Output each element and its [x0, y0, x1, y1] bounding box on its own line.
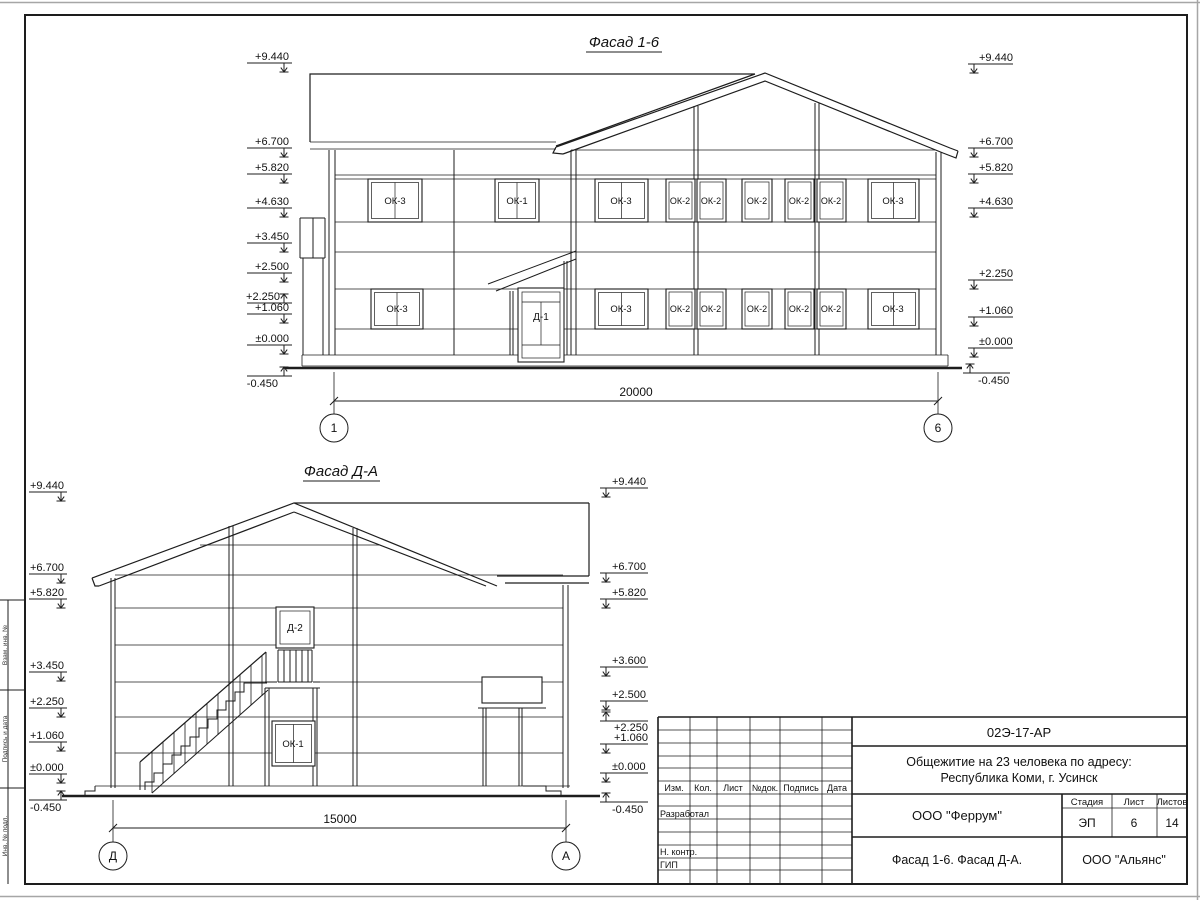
window-label: ОК-2	[670, 304, 690, 314]
window: ОК-2	[817, 289, 846, 329]
stage-label: Стадия	[1071, 797, 1103, 808]
elevation-mark: +2.250	[968, 268, 1013, 289]
elevation-marks-right: +9.440 +6.700 +5.820 +3.600 +2.500 +2.25…	[600, 476, 648, 816]
svg-text:±0.000: ±0.000	[255, 333, 289, 345]
elevation-mark: -0.450	[247, 367, 292, 390]
window: ОК-2	[742, 289, 772, 329]
doc-number: 02Э-17-АР	[987, 725, 1051, 740]
window: ОК-3	[868, 179, 919, 222]
svg-text:-0.450: -0.450	[30, 802, 61, 814]
elevation-mark: +1.060	[247, 302, 292, 323]
drawing-canvas: Взам. инв. № Подпись и дата Инв. № подл.…	[0, 0, 1200, 900]
window: ОК-3	[371, 289, 423, 329]
window-label: ОК-1	[282, 739, 303, 750]
window: ОК-2	[666, 179, 695, 222]
dimension-text: 15000	[323, 812, 357, 826]
facade-1-6: Фасад 1-6 ОК-3 ОК-1 ОК-3 ОК-2 ОК-2 ОК-2 …	[246, 34, 1013, 442]
svg-text:+9.440: +9.440	[979, 52, 1013, 64]
window: ОК-2	[785, 289, 814, 329]
window-label: ОК-3	[610, 304, 631, 315]
elevation-mark: ±0.000	[968, 336, 1013, 357]
siding-lines	[302, 142, 948, 366]
svg-text:+5.820: +5.820	[30, 587, 64, 599]
col-header: №док.	[752, 783, 778, 793]
client-org: ООО "Альянс"	[1082, 853, 1166, 867]
window: ОК-3	[595, 289, 648, 329]
elevation-mark: +5.820	[247, 162, 292, 183]
stage-value: ЭП	[1078, 816, 1095, 830]
project-name-line2: Республика Коми, г. Усинск	[941, 771, 1098, 785]
roof	[310, 73, 958, 158]
svg-text:+2.500: +2.500	[255, 261, 289, 273]
svg-text:+5.820: +5.820	[612, 587, 646, 599]
svg-text:-0.450: -0.450	[247, 378, 278, 390]
door-label: Д-1	[533, 312, 549, 323]
svg-text:+5.820: +5.820	[255, 162, 289, 174]
elevation-marks-left: +9.440 +6.700 +5.820 +3.450 +2.250 +1.06…	[29, 480, 67, 814]
window: ОК-1	[272, 721, 315, 766]
window-label: ОК-1	[506, 196, 527, 207]
window: ОК-2	[817, 179, 846, 222]
elevation-mark: +3.450	[247, 231, 292, 252]
wall-posts	[111, 526, 568, 788]
window: ОК-2	[666, 289, 695, 329]
sheets-total: 14	[1165, 816, 1179, 830]
elevation-mark: ±0.000	[29, 762, 67, 783]
col-header: Дата	[827, 783, 847, 793]
axis-label: 6	[935, 421, 942, 435]
chimney	[300, 218, 325, 355]
facade-d-a-title: Фасад Д-А	[304, 463, 378, 480]
dimension-15000: 15000 Д А	[99, 800, 580, 870]
col-header: Лист	[723, 783, 743, 793]
window-label: ОК-2	[821, 196, 841, 206]
project-name-line1: Общежитие на 23 человека по адресу:	[906, 755, 1131, 769]
col-header: Кол.	[694, 783, 712, 793]
facade-d-a: Фасад Д-А Д-2	[29, 463, 648, 870]
elevation-marks-left: +9.440 +6.700 +5.820 +4.630 +3.450 +2.50…	[246, 51, 292, 390]
window: ОК-3	[368, 179, 422, 222]
landing-railing	[277, 649, 313, 683]
svg-text:+6.700: +6.700	[612, 561, 646, 573]
window-label: ОК-2	[701, 304, 721, 314]
window: ОК-3	[868, 289, 919, 329]
svg-text:+4.630: +4.630	[255, 196, 289, 208]
role-label: Разработал	[660, 809, 709, 819]
window-label: ОК-2	[821, 304, 841, 314]
window-label: ОК-2	[670, 196, 690, 206]
elevation-mark: +1.060	[600, 732, 648, 753]
title-block: Изм. Кол. Лист №док. Подпись Дата Разраб…	[658, 717, 1187, 883]
sheet-label: Лист	[1124, 797, 1145, 808]
elevation-mark: -0.450	[600, 793, 648, 816]
door-label: Д-2	[287, 623, 303, 634]
window-label: ОК-3	[386, 304, 407, 315]
svg-text:+5.820: +5.820	[979, 162, 1013, 174]
window: ОК-2	[742, 179, 772, 222]
elevation-mark: +3.450	[29, 660, 67, 681]
axis-label: Д	[109, 849, 117, 863]
elevation-mark: +6.700	[968, 136, 1013, 157]
elevation-mark: +5.820	[29, 587, 67, 608]
elevation-marks-right: +9.440 +6.700 +5.820 +4.630 +2.250 +1.06…	[963, 52, 1013, 387]
designer-org: ООО "Феррум"	[912, 808, 1002, 823]
col-header: Подпись	[783, 783, 819, 793]
window: ОК-3	[595, 179, 648, 222]
axis-label: А	[562, 849, 570, 863]
porch	[478, 677, 580, 796]
svg-text:+1.060: +1.060	[255, 302, 289, 314]
base-step	[85, 786, 95, 796]
svg-text:+2.250: +2.250	[30, 696, 64, 708]
svg-text:+1.060: +1.060	[979, 305, 1013, 317]
elevation-mark: +2.250	[600, 712, 648, 734]
svg-text:+9.440: +9.440	[612, 476, 646, 488]
svg-text:+4.630: +4.630	[979, 196, 1013, 208]
sheet-title: Фасад 1-6. Фасад Д-А.	[892, 853, 1022, 867]
role-label: Н. контр.	[660, 847, 697, 857]
role-label: ГИП	[660, 860, 678, 870]
stairs	[140, 652, 268, 793]
svg-text:+3.450: +3.450	[255, 231, 289, 243]
axis-label: 1	[331, 421, 338, 435]
window: ОК-2	[697, 179, 726, 222]
window-label: ОК-2	[789, 304, 809, 314]
drawing-sheet: Взам. инв. № Подпись и дата Инв. № подл.…	[0, 0, 1200, 900]
window-label: ОК-3	[882, 304, 903, 315]
elevation-mark: +1.060	[968, 305, 1013, 326]
svg-text:+9.440: +9.440	[255, 51, 289, 63]
svg-text:+3.600: +3.600	[612, 655, 646, 667]
elevation-mark: +1.060	[29, 730, 67, 751]
elevation-mark: +9.440	[600, 476, 648, 497]
svg-text:+6.700: +6.700	[30, 562, 64, 574]
elevation-mark: +6.700	[29, 562, 67, 583]
roof	[92, 503, 589, 586]
entrance-door: Д-1	[518, 288, 564, 362]
elevation-mark: +5.820	[600, 587, 648, 608]
sheet-number: 6	[1131, 816, 1138, 830]
col-header: Изм.	[664, 783, 683, 793]
svg-text:±0.000: ±0.000	[30, 762, 64, 774]
window-label: ОК-2	[747, 196, 767, 206]
window-label: ОК-3	[384, 196, 405, 207]
elevation-mark: +2.500	[247, 261, 292, 282]
elevation-mark: ±0.000	[247, 333, 292, 354]
elevation-mark: -0.450	[29, 791, 67, 814]
window-label: ОК-3	[882, 196, 903, 207]
elevation-mark: +6.700	[600, 561, 648, 582]
facade-1-6-title: Фасад 1-6	[589, 34, 660, 51]
elevation-mark: +4.630	[968, 196, 1013, 217]
sheets-label: Листов	[1157, 797, 1188, 808]
elevation-mark: +4.630	[247, 196, 292, 217]
svg-text:+2.500: +2.500	[612, 689, 646, 701]
elevation-mark: ±0.000	[600, 761, 648, 782]
window-label: ОК-2	[789, 196, 809, 206]
elevation-mark: +9.440	[29, 480, 67, 501]
siding-lines	[95, 545, 570, 786]
window-label: ОК-2	[747, 304, 767, 314]
elevation-mark: +2.250	[29, 696, 67, 717]
window-label: ОК-2	[701, 196, 721, 206]
upper-door: Д-2	[276, 607, 314, 648]
svg-text:±0.000: ±0.000	[979, 336, 1013, 348]
frame-side-label: Взам. инв. №	[2, 625, 9, 665]
elevation-mark: +9.440	[968, 52, 1013, 73]
svg-text:+1.060: +1.060	[614, 732, 648, 744]
svg-text:+3.450: +3.450	[30, 660, 64, 672]
svg-text:+6.700: +6.700	[255, 136, 289, 148]
elevation-mark: +3.600	[600, 655, 648, 676]
elevation-mark: +2.500	[600, 689, 648, 710]
frame-side-label: Подпись и дата	[2, 715, 9, 762]
dimension-text: 20000	[619, 385, 653, 399]
svg-text:+6.700: +6.700	[979, 136, 1013, 148]
svg-text:+2.250: +2.250	[979, 268, 1013, 280]
elevation-mark: +6.700	[247, 136, 292, 157]
svg-text:+9.440: +9.440	[30, 480, 64, 492]
frame-side-label: Инв. № подл.	[2, 816, 9, 857]
svg-text:±0.000: ±0.000	[612, 761, 646, 773]
window: ОК-2	[697, 289, 726, 329]
elevation-mark: +5.820	[968, 162, 1013, 183]
svg-text:+1.060: +1.060	[30, 730, 64, 742]
elevation-mark: -0.450	[963, 364, 1010, 387]
svg-text:-0.450: -0.450	[978, 375, 1009, 387]
window: ОК-2	[785, 179, 814, 222]
dimension-20000: 20000 1 6	[320, 372, 952, 442]
window-label: ОК-3	[610, 196, 631, 207]
elevation-mark: +9.440	[247, 51, 292, 72]
window: ОК-1	[495, 179, 539, 222]
svg-text:-0.450: -0.450	[612, 804, 643, 816]
